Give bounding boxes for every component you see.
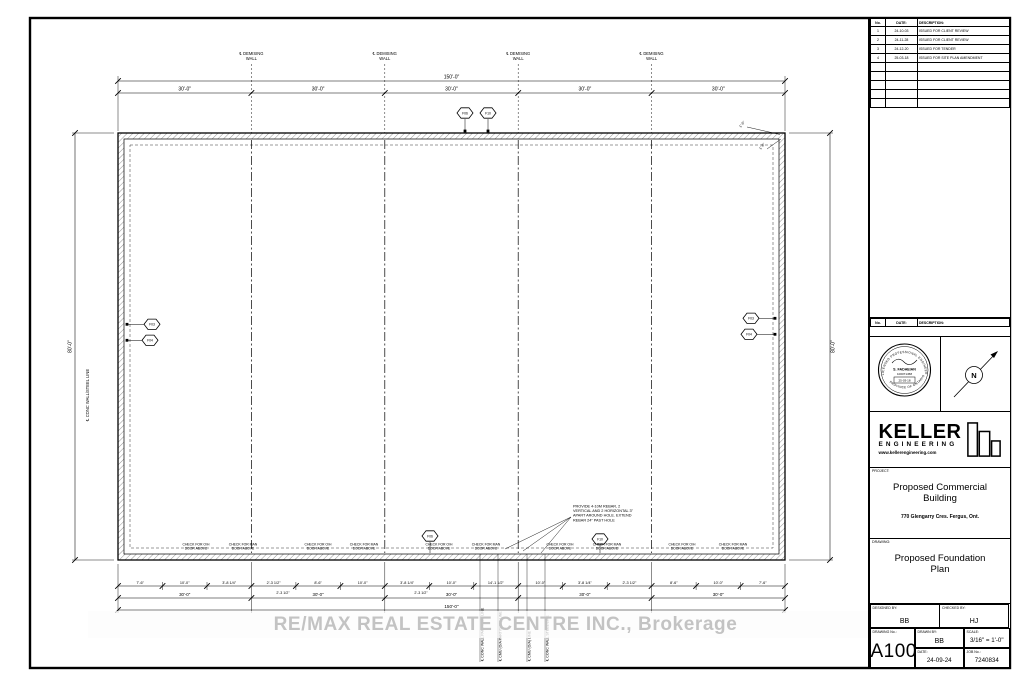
svg-text:℄ DEMISINGWALL: ℄ DEMISINGWALL xyxy=(372,51,397,61)
rev-col-no: No. xyxy=(871,19,886,27)
project-box: PROJECT: Proposed Commercial Building 77… xyxy=(870,468,1010,539)
keynote-f03-icon: F03 xyxy=(149,323,155,327)
scale-cell: SCALE: 3/16" = 1'-0" xyxy=(964,628,1011,649)
revision-row: 3 24-12-20 ISSUED FOR TENDER xyxy=(871,45,1010,54)
title-block-grid: DESIGNED BY: BB CHECKED BY: HJ DRAWN BY:… xyxy=(870,604,1010,668)
date-cell: DATE: 24-09-24 xyxy=(915,648,965,669)
svg-text:F06: F06 xyxy=(427,534,433,538)
svg-text:3'-8 1/4": 3'-8 1/4" xyxy=(400,581,415,585)
revision-row-empty xyxy=(871,99,1010,108)
bottom-centerlines xyxy=(480,554,545,662)
construction-line-label-left: ℄ CONC WALL/STEEL LINE xyxy=(85,369,90,422)
keynote-f10-icon: F10 xyxy=(485,111,491,115)
drawing-title-line2: Plan xyxy=(870,564,1010,575)
keynote-top: F06 F10 xyxy=(457,108,496,133)
svg-text:10'-0": 10'-0" xyxy=(447,581,457,585)
svg-text:CHECK FOR O/HDOOR ABOVE: CHECK FOR O/HDOOR ABOVE xyxy=(669,543,696,551)
dim-bay-3: 30'-0" xyxy=(445,87,458,93)
rev-col-desc: DESCRIPTION: xyxy=(918,19,1010,27)
project-address: 770 Glengarry Cres. Fergus, Ont. xyxy=(870,514,1010,520)
left-dimension xyxy=(72,133,114,560)
revision-row-empty xyxy=(871,63,1010,72)
svg-text:7'-6": 7'-6" xyxy=(136,581,144,585)
dim-bay-5: 30'-0" xyxy=(712,87,725,93)
building-outline xyxy=(118,133,785,560)
svg-text:1'-0": 1'-0" xyxy=(738,120,746,129)
revision-row-empty xyxy=(871,72,1010,81)
firm-website: www.kellerengineering.com xyxy=(879,449,962,456)
stamp-signature xyxy=(892,359,917,364)
revision-row: 2 24-11-28 ISSUED FOR CLIENT REVIEW xyxy=(871,36,1010,45)
drawing-title-line1: Proposed Foundation xyxy=(870,553,1010,564)
svg-text:2'-3 1/2": 2'-3 1/2" xyxy=(622,581,637,585)
svg-text:30'-0": 30'-0" xyxy=(713,592,725,597)
svg-text:F10: F10 xyxy=(597,537,603,541)
svg-text:CHECK FOR MANDOOR ABOVE: CHECK FOR MANDOOR ABOVE xyxy=(350,543,379,551)
revision-row-empty xyxy=(871,90,1010,99)
revision-table: No. DATE: DESCRIPTION: 1 24-10-03 ISSUED… xyxy=(870,18,1010,318)
firm-name: KELLER xyxy=(879,423,962,441)
svg-text:10'-0": 10'-0" xyxy=(358,581,368,585)
drawing-sheet: 150'-0" 30'-0" 30'-0" 30'-0" 30'-0" 30'-… xyxy=(0,0,1024,683)
svg-text:F04: F04 xyxy=(746,333,752,337)
project-title-line2: Building xyxy=(870,493,1010,504)
svg-text:8'-6": 8'-6" xyxy=(314,581,322,585)
keynote-f06-icon: F06 xyxy=(462,111,468,115)
job-number-cell: JOB No.: 7240834 xyxy=(964,648,1011,669)
svg-text:CHECK FOR MANDOOR ABOVE: CHECK FOR MANDOOR ABOVE xyxy=(593,543,622,551)
revision-table-2: No. DATE: DESCRIPTION: xyxy=(870,318,1010,337)
svg-text:℄ DEMISINGWALL: ℄ DEMISINGWALL xyxy=(238,51,263,61)
svg-text:℄ DEMISINGWALL: ℄ DEMISINGWALL xyxy=(639,51,664,61)
svg-text:CHECK FOR O/HDOOR ABOVE: CHECK FOR O/HDOOR ABOVE xyxy=(183,543,210,551)
title-block: No. DATE: DESCRIPTION: 1 24-10-03 ISSUED… xyxy=(868,18,1010,668)
firm-tagline: ENGINEERING xyxy=(879,441,962,449)
engineer-stamp: LICENSED PROFESSIONAL ENGINEER PROVINCE … xyxy=(870,337,940,411)
stamp-date: 25-03-18 xyxy=(898,378,910,382)
svg-text:CHECK FOR MANDOOR ABOVE: CHECK FOR MANDOOR ABOVE xyxy=(472,543,501,551)
svg-text:10'-0": 10'-0" xyxy=(713,581,723,585)
dim-bay-2: 30'-0" xyxy=(312,87,325,93)
svg-text:10'-0": 10'-0" xyxy=(536,581,546,585)
svg-text:30'-0": 30'-0" xyxy=(446,592,458,597)
revision-header-row: No. DATE: DESCRIPTION: xyxy=(871,19,1010,27)
rev-col-date: DATE: xyxy=(886,19,918,27)
svg-text:10'-0": 10'-0" xyxy=(180,581,190,585)
bottom-bay-dims: 30'-0" 30'-0" 30'-0" 30'-0" 30'-0" xyxy=(179,592,724,597)
svg-text:3'-8 1/4": 3'-8 1/4" xyxy=(578,581,593,585)
date-value: 24-09-24 xyxy=(916,657,964,664)
revision-row: 4 25-03-18 ISSUED FOR SITE PLAN AMENDMEN… xyxy=(871,54,1010,63)
dim-overall-depth-right: 80'-0" xyxy=(831,340,837,353)
revision-row-empty xyxy=(871,81,1010,90)
svg-text:CHECK FOR O/HDOOR ABOVE: CHECK FOR O/HDOOR ABOVE xyxy=(305,543,332,551)
checked-by-value: HJ xyxy=(940,618,1008,625)
svg-text:2'-3 1/2": 2'-3 1/2" xyxy=(267,581,282,585)
designed-by-cell: DESIGNED BY: BB xyxy=(870,604,940,629)
drawing-label: DRAWING: xyxy=(872,540,890,544)
scale-value: 3/16" = 1'-0" xyxy=(965,637,1010,644)
svg-text:14'-1 1/2": 14'-1 1/2" xyxy=(488,581,505,585)
drawn-by-value: BB xyxy=(916,638,964,645)
checked-by-cell: CHECKED BY: HJ xyxy=(939,604,1009,629)
north-arrow: N xyxy=(940,337,1010,411)
drawing-number-value: A100 xyxy=(871,641,915,663)
svg-text:30'-0": 30'-0" xyxy=(179,592,191,597)
svg-text:30'-0": 30'-0" xyxy=(313,592,325,597)
dim-bay-1: 30'-0" xyxy=(178,87,191,93)
svg-text:CHECK FOR MANDOOR ABOVE: CHECK FOR MANDOOR ABOVE xyxy=(229,543,258,551)
designed-by-value: BB xyxy=(871,618,939,625)
right-dimension xyxy=(789,133,833,560)
dim-overall-width-top: 150'-0" xyxy=(444,75,460,81)
svg-text:℄ DEMISINGWALL: ℄ DEMISINGWALL xyxy=(505,51,530,61)
project-title-line1: Proposed Commercial xyxy=(870,482,1010,493)
svg-text:F03: F03 xyxy=(748,317,754,321)
drawn-by-cell: DRAWN BY: BB xyxy=(915,628,965,649)
firm-logo-mark-icon xyxy=(966,422,1002,458)
job-number-value: 7240834 xyxy=(965,657,1010,664)
svg-text:2'-3 1/2": 2'-3 1/2" xyxy=(276,591,290,595)
svg-text:30'-0": 30'-0" xyxy=(579,592,591,597)
drawing-box: DRAWING: Proposed Foundation Plan xyxy=(870,539,1010,604)
north-label: N xyxy=(971,371,976,380)
svg-text:8'-6": 8'-6" xyxy=(670,581,678,585)
drawing-number-cell: DRAWING No.: A100 xyxy=(870,628,916,669)
dim-overall-depth-left: 80'-0" xyxy=(68,340,74,353)
firm-logo: KELLER ENGINEERING www.kellerengineering… xyxy=(870,412,1010,468)
demising-wall-labels: ℄ DEMISINGWALL ℄ DEMISINGWALL ℄ DEMISING… xyxy=(238,51,663,61)
svg-text:CHECK FOR O/HDOOR ABOVE: CHECK FOR O/HDOOR ABOVE xyxy=(547,543,574,551)
svg-text:CHECK FOR MANDOOR ABOVE: CHECK FOR MANDOOR ABOVE xyxy=(719,543,748,551)
project-label: PROJECT: xyxy=(872,469,889,473)
dim-bay-4: 30'-0" xyxy=(579,87,592,93)
north-arrow-head xyxy=(991,351,999,358)
svg-text:2'-3 1/2": 2'-3 1/2" xyxy=(414,591,428,595)
svg-text:7'-6": 7'-6" xyxy=(759,581,767,585)
svg-text:3'-8 1/4": 3'-8 1/4" xyxy=(222,581,237,585)
stamp-license: 100071458 xyxy=(897,372,912,376)
revision-row: 1 24-10-03 ISSUED FOR CLIENT REVIEW xyxy=(871,27,1010,36)
watermark: RE/MAX REAL ESTATE CENTRE INC., Brokerag… xyxy=(88,611,923,638)
keynote-f04-icon: F04 xyxy=(147,339,153,343)
svg-text:CHECK FOR O/HDOOR ABOVE: CHECK FOR O/HDOOR ABOVE xyxy=(426,543,453,551)
dim-overall-width-bottom: 150'-0" xyxy=(444,604,459,609)
